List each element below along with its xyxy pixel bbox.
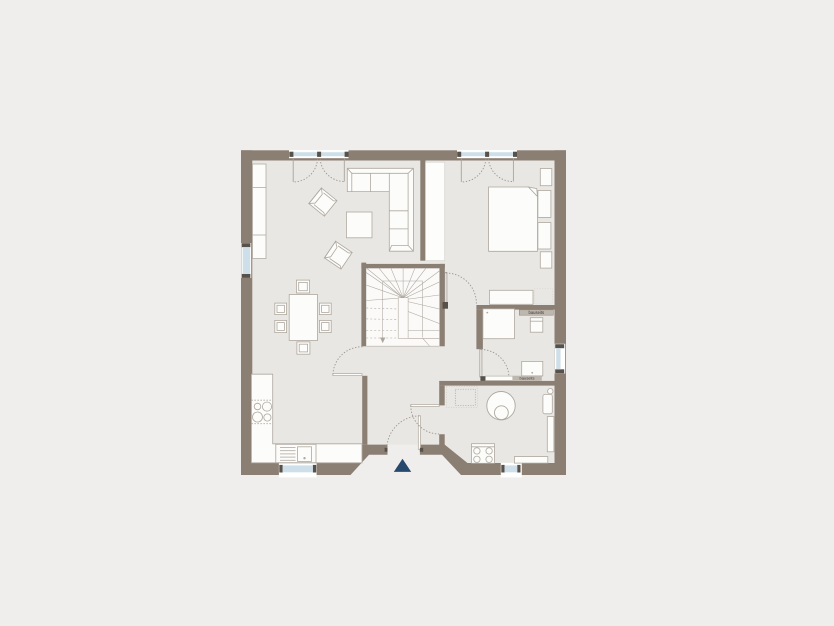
svg-text:bauseits: bauseits (520, 376, 535, 381)
svg-text:bauseits: bauseits (528, 310, 544, 315)
